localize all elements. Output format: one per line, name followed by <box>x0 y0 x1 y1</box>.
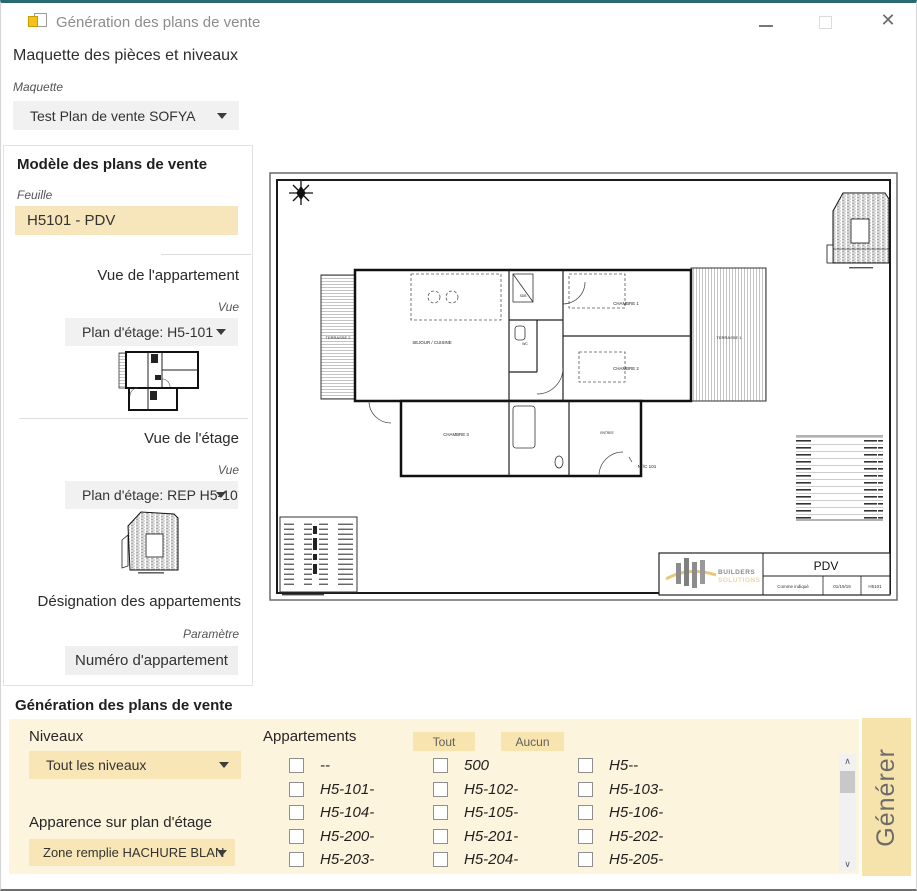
tout-button[interactable]: Tout <box>413 732 475 751</box>
appartements-label: Appartements <box>263 728 356 745</box>
apartment-checkbox[interactable] <box>433 782 448 797</box>
apartment-tag: N°/C 101 <box>638 464 657 469</box>
apartment-option: H5-- <box>578 754 733 778</box>
apartment-checkbox[interactable] <box>289 758 304 773</box>
room-label: WC <box>522 342 528 346</box>
model-heading: Modèle des plans de vente <box>17 156 207 173</box>
apartment-label: H5-200- <box>320 828 374 845</box>
apartment-option: H5-105- <box>433 801 578 825</box>
room-label: CHAMBRE 2 <box>613 366 639 371</box>
apartment-checkbox[interactable] <box>289 782 304 797</box>
surface-table <box>796 436 883 520</box>
apartments-scrollbar[interactable] <box>839 754 856 871</box>
apartment-option: H5-106- <box>578 801 733 825</box>
sheet-number: H5101 <box>868 584 882 589</box>
window-title: Génération des plans de vente <box>56 14 260 31</box>
apartment-checkbox[interactable] <box>289 805 304 820</box>
app-icon <box>28 12 48 30</box>
apparence-dropdown[interactable]: Zone remplie HACHURE BLAN <box>29 839 235 866</box>
apartment-option: H5-205- <box>578 848 733 872</box>
apartment-checkbox[interactable] <box>433 829 448 844</box>
brand-line2: SOLUTIONS <box>718 577 761 584</box>
maquette-label: Maquette <box>13 80 63 94</box>
generer-button-label: Générer <box>872 748 901 847</box>
apartment-checkbox[interactable] <box>433 852 448 867</box>
aucun-button[interactable]: Aucun <box>501 732 564 751</box>
niveaux-dropdown[interactable]: Tout les niveaux <box>29 751 241 779</box>
room-label: CHAMBRE 3 <box>443 432 469 437</box>
apartment-label: -- <box>320 757 330 774</box>
apartment-option: H5-200- <box>289 825 433 849</box>
apartment-option: H5-102- <box>433 778 578 802</box>
apartment-label: H5-103- <box>609 781 663 798</box>
divider <box>19 418 248 419</box>
apartment-label: H5-102- <box>464 781 518 798</box>
sheet-preview: TERRASSE 2 SEJOUR / CUISINE CHAMBRE 1 CH… <box>269 172 898 601</box>
floor-view-dropdown[interactable]: Plan d'étage: REP H5-10 <box>65 481 238 509</box>
scroll-down-icon[interactable] <box>839 857 856 871</box>
apartment-label: H5-203- <box>320 851 374 868</box>
apartment-option: H5-103- <box>578 778 733 802</box>
apartment-checkbox[interactable] <box>289 829 304 844</box>
apartment-view-dropdown-value: Plan d'étage: H5-101 <box>65 324 238 340</box>
apparence-dropdown-value: Zone remplie HACHURE BLAN <box>29 845 235 860</box>
apartment-checkbox[interactable] <box>578 829 593 844</box>
chevron-down-icon <box>219 762 229 768</box>
apartment-checkbox[interactable] <box>578 852 593 867</box>
apartment-view-heading: Vue de l'appartement <box>13 267 239 284</box>
apartment-label: H5-104- <box>320 804 374 821</box>
room-label: SEJOUR / CUISINE <box>412 340 451 345</box>
apartment-label: 500 <box>464 757 489 774</box>
maquette-dropdown-value: Test Plan de vente SOFYA <box>13 108 239 124</box>
floor-thumbnail <box>116 508 186 580</box>
floor-view-vue-label: Vue <box>13 463 239 477</box>
sheet-scale: Comme indiqué <box>777 584 809 589</box>
close-icon[interactable] <box>878 10 898 32</box>
floor-view-heading: Vue de l'étage <box>13 430 239 447</box>
apartment-checkbox[interactable] <box>433 758 448 773</box>
apartment-label: H5-202- <box>609 828 663 845</box>
room-label: TERRASSE 1 <box>717 335 743 340</box>
apartment-label: H5-205- <box>609 851 663 868</box>
title-block: BUILDERS SOLUTIONS PDV Comme indiqué 01/… <box>659 553 890 595</box>
brand-line1: BUILDERS <box>718 569 755 576</box>
apartment-label: H5-201- <box>464 828 518 845</box>
chevron-down-icon <box>216 492 226 498</box>
apartment-option: H5-201- <box>433 825 578 849</box>
apartment-label: H5-- <box>609 757 638 774</box>
niveaux-label: Niveaux <box>29 728 83 745</box>
apartment-option: H5-203- <box>289 848 433 872</box>
maximize-icon[interactable] <box>819 16 832 29</box>
apartment-view-dropdown[interactable]: Plan d'étage: H5-101 <box>65 318 238 346</box>
dialog-window: Génération des plans de vente Maquette d… <box>0 0 917 891</box>
apartment-label: H5-106- <box>609 804 663 821</box>
apartment-option: H5-202- <box>578 825 733 849</box>
sheet-title: PDV <box>814 559 839 573</box>
apartment-checkbox[interactable] <box>578 758 593 773</box>
apartment-label: H5-105- <box>464 804 518 821</box>
room-label: TERRASSE 2 <box>326 335 352 340</box>
room-label: SDB <box>520 294 528 298</box>
sheet-date: 01/19/19 <box>833 584 851 589</box>
minimize-icon[interactable] <box>757 16 775 32</box>
apartment-view-vue-label: Vue <box>13 300 239 314</box>
apartment-checkbox[interactable] <box>578 782 593 797</box>
designation-heading: Désignation des appartements <box>13 593 241 610</box>
app-icon-front <box>28 16 38 27</box>
apartments-checkbox-grid: --500H5--H5-101-H5-102-H5-103-H5-104-H5-… <box>289 754 733 872</box>
maquette-heading: Maquette des pièces et niveaux <box>13 47 238 65</box>
feuille-label: Feuille <box>17 188 52 202</box>
apartment-checkbox[interactable] <box>433 805 448 820</box>
apartment-option: H5-204- <box>433 848 578 872</box>
scroll-up-icon[interactable] <box>839 754 856 768</box>
divider <box>161 254 251 255</box>
maquette-dropdown[interactable]: Test Plan de vente SOFYA <box>13 101 239 130</box>
apartment-checkbox[interactable] <box>289 852 304 867</box>
niveaux-dropdown-value: Tout les niveaux <box>29 757 241 773</box>
apartment-thumbnail <box>98 349 202 413</box>
apartment-option: H5-104- <box>289 801 433 825</box>
apartment-label: H5-101- <box>320 781 374 798</box>
apartment-option: -- <box>289 754 433 778</box>
chevron-down-icon <box>216 329 226 335</box>
feuille-field[interactable]: H5101 - PDV <box>15 206 238 235</box>
parametre-field[interactable]: Numéro d'appartement <box>65 646 238 675</box>
scrollbar-thumb[interactable] <box>840 771 855 793</box>
chevron-down-icon <box>217 850 227 856</box>
room-label: ENTREE <box>600 431 614 435</box>
room-label: CHAMBRE 1 <box>613 301 639 306</box>
floor-view-dropdown-value: Plan d'étage: REP H5-10 <box>65 487 238 503</box>
key-plan <box>827 193 889 268</box>
generer-button[interactable]: Générer <box>862 718 911 876</box>
parametre-label: Paramètre <box>13 627 239 641</box>
chevron-down-icon <box>217 113 227 119</box>
apartment-option: H5-101- <box>289 778 433 802</box>
apartment-checkbox[interactable] <box>578 805 593 820</box>
apparence-label: Apparence sur plan d'étage <box>29 814 212 831</box>
apartment-option: 500 <box>433 754 578 778</box>
legend-box <box>280 517 357 595</box>
generation-heading: Génération des plans de vente <box>15 697 233 714</box>
apartment-label: H5-204- <box>464 851 518 868</box>
